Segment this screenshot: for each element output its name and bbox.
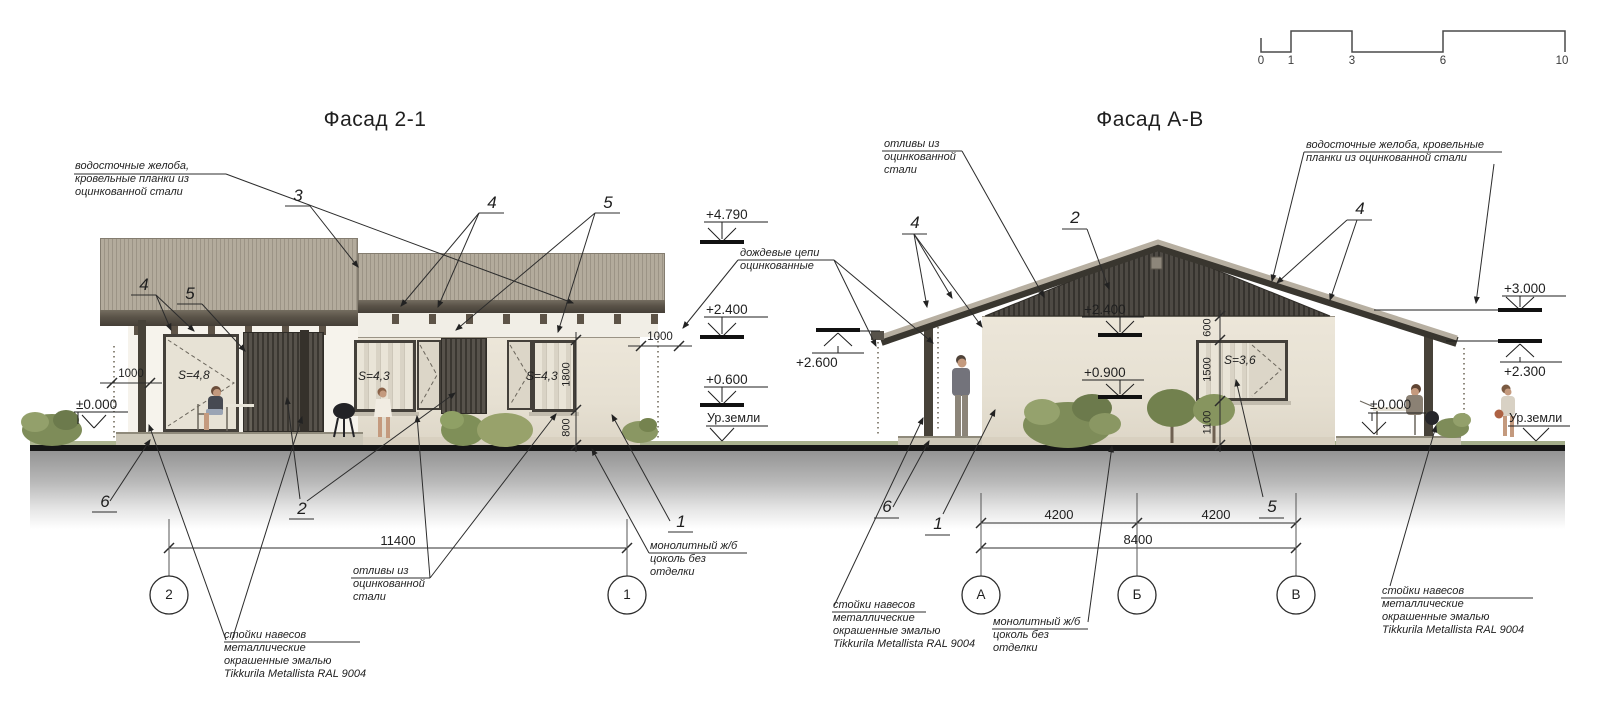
facade-ab-title: Фасад А-В: [1060, 108, 1240, 132]
axis-label: В: [1277, 587, 1315, 602]
dimension-label: 4200: [1029, 507, 1089, 522]
area-label: S=3,6: [1224, 353, 1256, 367]
annotation-rain-chains: дождевые цепи оцинкованные: [740, 247, 819, 273]
annotation-line: планки из оцинкованной стали: [1306, 152, 1484, 165]
dimension-label: 600: [1202, 306, 1215, 350]
annotation-line: металлические: [1382, 598, 1524, 611]
callout-number: 4: [134, 275, 154, 295]
annotation-line: стойки навесов: [833, 599, 975, 612]
scale-bar: [1261, 31, 1565, 52]
area-label: S=4,8: [178, 368, 210, 382]
annotation-line: стали: [353, 591, 425, 604]
canopy-post: [300, 330, 309, 432]
callout-number: 6: [95, 492, 115, 512]
axis-label: 2: [150, 587, 188, 602]
annotation-line: оцинкованной стали: [75, 186, 189, 199]
dimension-label: 4200: [1186, 507, 1246, 522]
callout-number: 3: [288, 186, 308, 206]
scale-tick-label: 10: [1551, 55, 1573, 67]
annotation-line: дождевые цепи: [740, 247, 819, 260]
dimension-label: 1500: [1202, 348, 1215, 392]
elevation-label: ±0.000: [76, 397, 117, 412]
dimension-label: 1800: [561, 353, 574, 397]
annotation-line: Tikkurila Metallista RAL 9004: [224, 668, 366, 681]
annotation-line: монолитный ж/б: [650, 540, 737, 553]
callout-number: 1: [928, 514, 948, 534]
annotation-plinth: монолитный ж/б цоколь без отделки: [650, 540, 737, 579]
elevation-label: ±0.000: [1370, 397, 1411, 412]
annotation-line: монолитный ж/б: [993, 616, 1080, 629]
dimension-label: 1100: [1202, 401, 1215, 445]
annotation-plinth: монолитный ж/б цоколь без отделки: [993, 616, 1080, 655]
annotation-line: металлические: [833, 612, 975, 625]
annotation-drips: отливы из оцинкованной стали: [353, 565, 425, 604]
annotation-line: отделки: [650, 566, 737, 579]
annotation-line: цоколь без: [650, 553, 737, 566]
canopy-post: [924, 322, 933, 436]
elevation-label: +3.000: [1504, 281, 1546, 296]
glass-door: [163, 334, 239, 432]
annotation-line: оцинкованной: [884, 151, 956, 164]
axis-label: А: [962, 587, 1000, 602]
callout-number: 5: [598, 193, 618, 213]
annotation-line: окрашенные эмалью: [224, 655, 366, 668]
annotation-line: окрашенные эмалью: [1382, 611, 1524, 624]
callout-number: 5: [1262, 497, 1282, 517]
terrace-deck: [116, 432, 363, 445]
ground-level-label: Ур.земли: [1509, 411, 1562, 425]
casement-window: [417, 340, 441, 410]
annotation-gutters: водосточные желоба, кровельные планки из…: [75, 160, 189, 199]
scale-tick-label: 6: [1432, 55, 1454, 67]
annotation-line: оцинкованные: [740, 260, 819, 273]
annotation-line: водосточные желоба,: [75, 160, 189, 173]
roof-fascia-right: [358, 300, 665, 313]
drawing-canvas: Фасад 2-1 Фасад А-В 0 1 3 6 10 водосточн…: [0, 0, 1600, 720]
slat-panel-terrace: [243, 332, 324, 432]
annotation-line: стали: [884, 164, 956, 177]
annotation-line: металлические: [224, 642, 366, 655]
plinth: [982, 437, 1335, 445]
callout-number: 2: [292, 499, 312, 519]
rafter-tails-right: [362, 314, 658, 324]
elevation-label: +2.400: [706, 302, 748, 317]
callout-number: 1: [671, 512, 691, 532]
annotation-line: кровельные планки из: [75, 173, 189, 186]
area-label: S=4,3: [358, 369, 390, 383]
annotation-posts: стойки навесов металлические окрашенные …: [1382, 585, 1524, 637]
annotation-line: оцинкованной: [353, 578, 425, 591]
axis-label: 1: [608, 587, 646, 602]
annotation-line: водосточные желоба, кровельные: [1306, 139, 1484, 152]
callout-number: 5: [180, 284, 200, 304]
plinth: [358, 437, 640, 445]
callout-number: 4: [905, 213, 925, 233]
elevation-label: +2.300: [1504, 364, 1546, 379]
facade-21-title: Фасад 2-1: [285, 108, 465, 132]
dimension-label: 800: [561, 406, 574, 450]
roof-right-section: [358, 253, 665, 302]
dimension-label: 11400: [368, 533, 428, 548]
dimension-label: 8400: [1108, 532, 1168, 547]
canopy-post: [1424, 332, 1433, 436]
annotation-line: Tikkurila Metallista RAL 9004: [1382, 624, 1524, 637]
scale-tick-label: 3: [1341, 55, 1363, 67]
annotation-drips: отливы из оцинкованной стали: [884, 138, 956, 177]
annotation-line: окрашенные эмалью: [833, 625, 975, 638]
callout-number: 2: [1065, 208, 1085, 228]
scale-tick-label: 1: [1280, 55, 1302, 67]
annotation-posts: стойки навесов металлические окрашенные …: [224, 629, 366, 681]
annotation-line: стойки навесов: [1382, 585, 1524, 598]
annotation-line: отливы из: [884, 138, 956, 151]
slat-panel-wall: [441, 338, 487, 414]
callout-number: 6: [877, 497, 897, 517]
window-sill: [351, 412, 419, 416]
ground-level-label: Ур.земли: [707, 411, 760, 425]
porch-deck: [1336, 436, 1461, 445]
elevation-label: +4.790: [706, 207, 748, 222]
elevation-label: +2.400: [1084, 302, 1126, 317]
callout-number: 4: [482, 193, 502, 213]
porch-deck: [898, 436, 982, 445]
axis-label: Б: [1118, 587, 1156, 602]
elevation-label: +0.900: [1084, 365, 1126, 380]
scale-tick-label: 0: [1250, 55, 1272, 67]
annotation-posts: стойки навесов металлические окрашенные …: [833, 599, 975, 651]
dimension-label: 1000: [101, 368, 161, 380]
annotation-line: Tikkurila Metallista RAL 9004: [833, 638, 975, 651]
elevation-label: +2.600: [796, 355, 838, 370]
person-standing-man: [952, 355, 970, 436]
callout-number: 4: [1350, 199, 1370, 219]
ground-shading: [30, 451, 1565, 529]
elevation-label: +0.600: [706, 372, 748, 387]
area-label: S=4,3: [526, 369, 558, 383]
annotation-gutters: водосточные желоба, кровельные планки из…: [1306, 139, 1484, 165]
annotation-line: отделки: [993, 642, 1080, 655]
dimension-label: 1000: [630, 331, 690, 343]
annotation-line: стойки навесов: [224, 629, 366, 642]
annotation-line: отливы из: [353, 565, 425, 578]
annotation-line: цоколь без: [993, 629, 1080, 642]
